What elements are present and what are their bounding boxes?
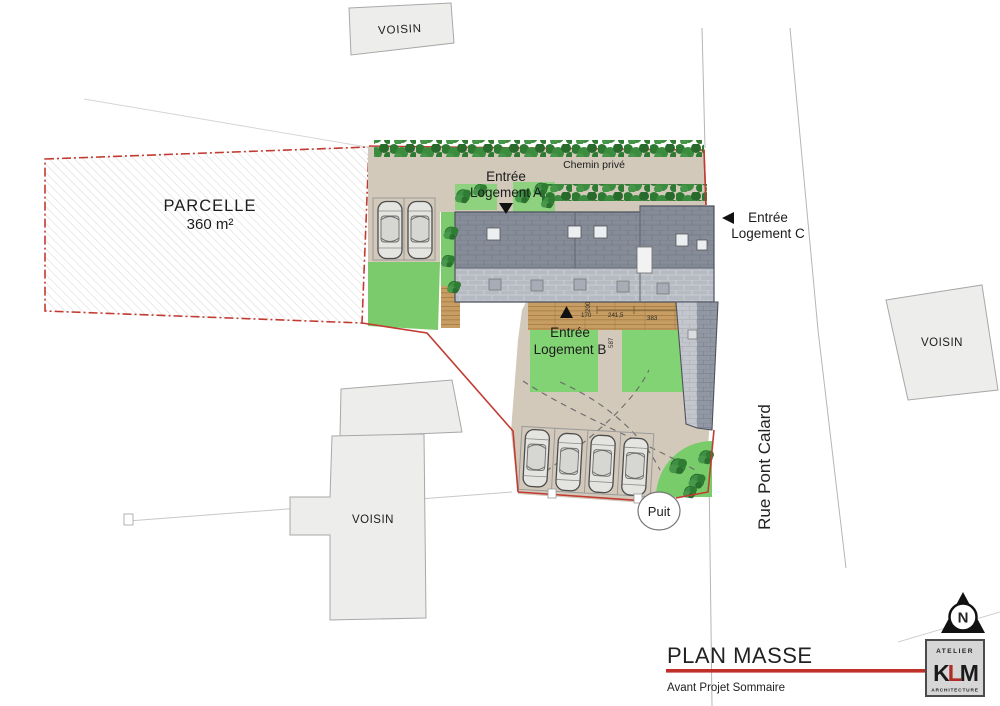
entrance-c-line1: Entrée [748,210,788,225]
parking-north [373,198,435,260]
site-plan-sheet: Puit VOISIN VOISIN VOISIN PARCELLE 360 m… [0,0,1000,706]
neighbor-right-label: VOISIN [921,337,963,349]
logo-klm: KLM [933,660,978,686]
logo-bottom: ARCHITECTURE [931,688,978,694]
north-letter: N [958,610,969,627]
logo-top: ATELIER [936,648,974,655]
parcel-label: PARCELLE [164,197,257,215]
car [523,429,550,487]
entrance-b-line1: Entrée [550,325,590,340]
neighbor-top-label: VOISIN [378,23,422,37]
sheet-subtitle: Avant Projet Sommaire [667,682,785,694]
neighbor-bottom-label: VOISIN [352,514,394,526]
car [621,438,648,496]
entrance-c-label: Entrée Logement C [722,210,805,241]
dim-200: 200 [585,301,592,312]
neighbor-building-bottom [290,380,462,620]
dim-587: 587 [608,337,615,348]
street-label: Rue Pont Calard [755,404,774,530]
north-arrow: N [941,592,985,633]
main-building-roof [455,206,714,302]
logo-m: M [960,660,978,686]
parcel-hatched-area [45,147,369,323]
chimney [637,247,652,273]
car [378,202,402,259]
entrance-a-line2: Logement A [470,185,542,200]
dim-383: 383 [647,315,658,322]
entrance-c-line2: Logement C [731,226,805,241]
entrance-b-line2: Logement B [534,342,607,357]
dim-170: 170 [581,312,592,319]
road-rue-pont-calard [702,28,846,706]
private-path-label: Chemin privé [563,159,625,171]
car [556,433,583,491]
well: Puit [638,492,680,530]
entrance-c-arrow-icon [722,212,734,224]
architect-logo: ATELIER KLM ARCHITECTURE [926,640,984,696]
dim-241-5: 241,5 [608,312,624,319]
site-plan-drawing: Puit VOISIN VOISIN VOISIN PARCELLE 360 m… [0,0,1000,706]
sheet-title: PLAN MASSE [667,643,813,668]
car [408,202,432,259]
well-label: Puit [648,504,671,519]
car [588,435,615,493]
title-underline [666,669,926,673]
entrance-a-line1: Entrée [486,169,526,184]
title-block: PLAN MASSE Avant Projet Sommaire [666,643,926,694]
parcel-area: 360 m² [187,216,234,233]
